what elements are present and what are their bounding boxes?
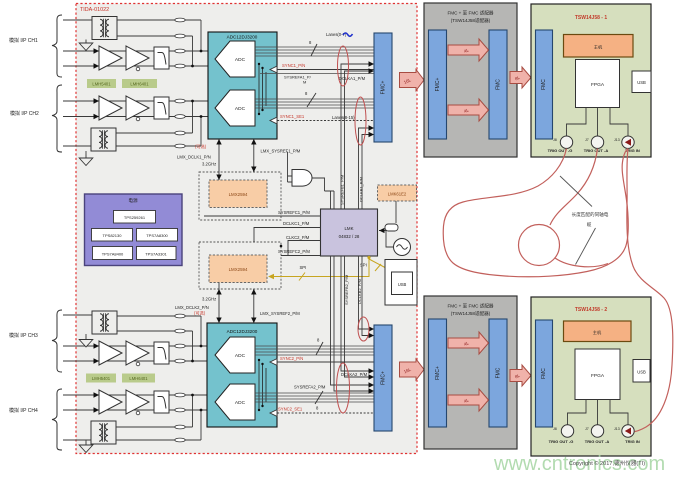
svg-text:M: M [303,80,306,85]
svg-text:LMX2594: LMX2594 [229,192,248,197]
svg-text:DCLKA1_P/M: DCLKA1_P/M [339,76,366,81]
svg-text:J7: J7 [585,138,589,142]
svg-text:LMK61E2: LMK61E2 [388,192,407,197]
svg-text:J13: J13 [614,427,620,431]
svg-text:LMK: LMK [344,226,353,231]
svg-text:SYNC2_SE1: SYNC2_SE1 [278,407,303,412]
svg-text:ADC12DJ3200: ADC12DJ3200 [227,329,258,334]
svg-text:Lanes(8-15): Lanes(8-15) [332,115,355,120]
svg-text:主机: 主机 [593,329,602,336]
svg-text:FMC+: FMC+ [435,78,441,92]
svg-text:LMH6401: LMH6401 [130,82,149,87]
svg-text:TSW14J58 - 1: TSW14J58 - 1 [575,15,607,21]
svg-text:FMC + 至 FMC 适配器: FMC + 至 FMC 适配器 [447,10,493,17]
svg-text:FMC+: FMC+ [381,81,387,95]
svg-text:J8: J8 [553,427,557,431]
svg-text:FMC: FMC [496,79,502,90]
svg-text:SYSREFC1_P/M: SYSREFC1_P/M [278,210,310,215]
svg-text:DCLKB2_P/M: DCLKB2_P/M [357,279,362,304]
svg-text:J7: J7 [585,427,589,431]
svg-text:电源: 电源 [128,197,138,204]
svg-text:3.2GHz: 3.2GHz [202,297,216,302]
svg-text:模拟 I/P CH1: 模拟 I/P CH1 [9,37,38,44]
svg-text:SYNC1_SE1: SYNC1_SE1 [280,114,305,119]
svg-text:TRIG OUT -A: TRIG OUT -A [584,148,609,153]
svg-text:(可选): (可选) [194,310,206,317]
svg-text:ADC: ADC [235,400,246,406]
svg-text:04832 / 28: 04832 / 28 [339,234,360,239]
svg-text:SYSREFB1_P/M: SYSREFB1_P/M [340,175,345,205]
svg-text:TIDA-01022: TIDA-01022 [80,7,109,13]
svg-text:TRIG IN: TRIG IN [625,439,640,444]
svg-text:TPS82130: TPS82130 [103,233,123,238]
svg-text:(可选): (可选) [195,143,207,150]
svg-text:模拟 I/P CH2: 模拟 I/P CH2 [10,110,39,117]
svg-text:ADC12DJ3200: ADC12DJ3200 [227,35,258,40]
svg-text:长度匹配的同轴电: 长度匹配的同轴电 [572,211,609,218]
svg-text:USB: USB [637,370,646,375]
svg-text:FMC: FMC [541,79,547,90]
svg-text:USB: USB [398,282,407,287]
svg-text:FMC + 至 FMC 适配器: FMC + 至 FMC 适配器 [447,303,493,310]
svg-text:FPGA: FPGA [591,373,605,379]
svg-text:TRIG OUT -G: TRIG OUT -G [548,148,573,153]
svg-text:(TSW14J58适配器): (TSW14J58适配器) [451,17,491,24]
svg-text:LMX_SYSREF2_P/M: LMX_SYSREF2_P/M [260,311,300,316]
svg-text:LMH5401: LMH5401 [92,82,111,87]
svg-text:LMX_DCLK1_P/N: LMX_DCLK1_P/N [177,155,211,160]
svg-text:SPI: SPI [300,265,307,270]
svg-text:缆: 缆 [587,221,592,228]
svg-text:SYSREFA1_P/: SYSREFA1_P/ [284,75,312,80]
svg-text:J8: J8 [553,138,557,142]
svg-text:TRIG OUT -A: TRIG OUT -A [585,439,610,444]
svg-text:ADC: ADC [235,57,246,63]
svg-text:SYNC2_P/N: SYNC2_P/N [280,356,303,361]
svg-text:Copyright © 2017,德州仪器(TI): Copyright © 2017,德州仪器(TI) [569,459,645,467]
svg-text:TPS259261: TPS259261 [124,215,146,220]
svg-text:TPS7A8400: TPS7A8400 [102,252,124,257]
svg-text:主机: 主机 [594,44,603,51]
svg-text:TRIG OUT -G: TRIG OUT -G [549,439,574,444]
svg-text:LMX2594: LMX2594 [229,267,248,272]
svg-text:SYSREFA2_P/M: SYSREFA2_P/M [294,385,326,390]
svg-text:ADC: ADC [235,353,246,359]
svg-text:3.2GHz: 3.2GHz [202,162,216,167]
svg-text:SYSREFB2_P/M: SYSREFB2_P/M [344,275,349,305]
svg-text:USB: USB [637,80,646,85]
svg-text:FMC: FMC [496,367,502,378]
svg-text:模拟 I/P CH4: 模拟 I/P CH4 [9,407,38,414]
svg-text:J13: J13 [614,138,620,142]
svg-text:FPGA: FPGA [591,82,605,88]
svg-text:LMX_SYSREF1_P/M: LMX_SYSREF1_P/M [261,149,301,154]
svg-text:SPI: SPI [360,263,367,268]
svg-text:LMH6401: LMH6401 [129,376,148,381]
svg-text:DCLKC1_P/M: DCLKC1_P/M [283,221,310,226]
svg-text:SYNC1_P/N: SYNC1_P/N [282,63,305,68]
svg-text:CLKC2_P/M: CLKC2_P/M [286,235,310,240]
svg-text:(TSW14J58适配器): (TSW14J58适配器) [451,310,491,317]
svg-text:FMC: FMC [541,368,547,379]
svg-text:模拟 I/P CH3: 模拟 I/P CH3 [9,332,38,339]
svg-text:TSW14J58 - 2: TSW14J58 - 2 [575,307,607,313]
svg-text:DCLKA2_P/M: DCLKA2_P/M [341,372,368,377]
svg-text:FMC+: FMC+ [381,371,387,385]
svg-text:LMX_DCLK2_P/N: LMX_DCLK2_P/N [175,305,209,310]
svg-text:SYSREFC2_P/M: SYSREFC2_P/M [278,249,310,254]
svg-text:DCLKB1_P/M: DCLKB1_P/M [359,177,364,202]
svg-text:ADC: ADC [235,106,246,112]
svg-text:LMH5401: LMH5401 [92,376,111,381]
svg-text:FMC+: FMC+ [435,366,441,380]
svg-text:TPS7A3301: TPS7A3301 [145,252,167,257]
svg-text:TPS7A8300: TPS7A8300 [146,233,168,238]
